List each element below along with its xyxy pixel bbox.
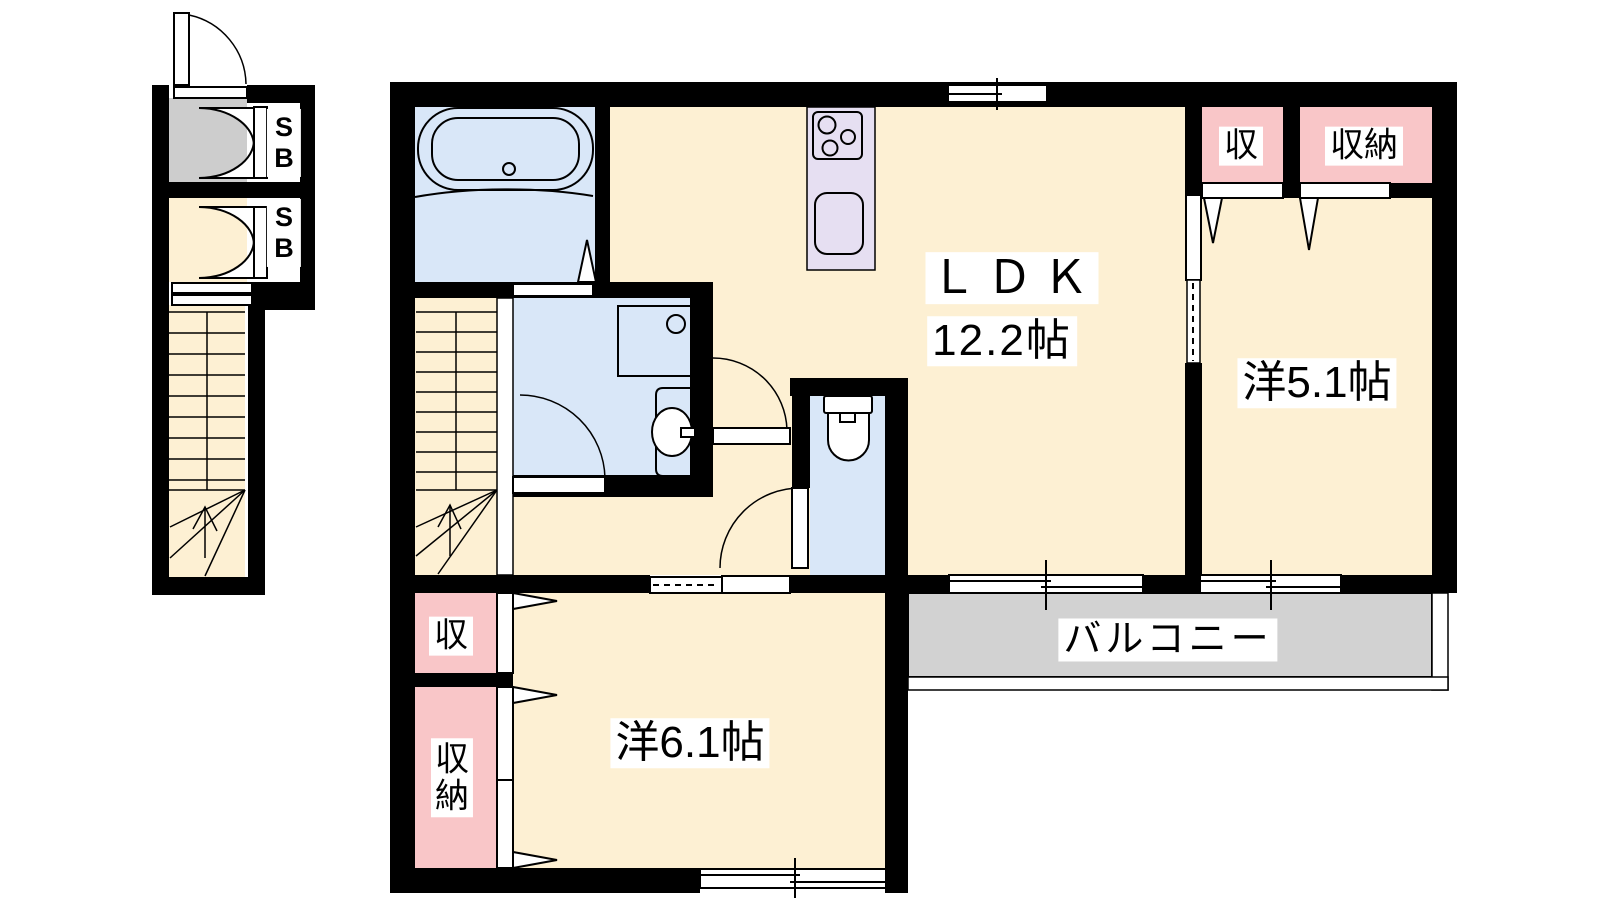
room-label-bedroom-south: 洋6.1帖 [610, 718, 769, 768]
kitchen-counter [807, 107, 875, 270]
closet-label-sw: 収 [429, 617, 473, 656]
closet-label-ne: 収納 [1325, 127, 1403, 166]
entrance-door-leaf [174, 13, 189, 85]
balcony-rail [908, 677, 1448, 690]
closet-door [1202, 183, 1283, 198]
hall-threshold [172, 295, 252, 305]
hall-threshold [172, 283, 252, 293]
toilet-icon [824, 396, 872, 460]
room-label-bedroom-east: 洋5.1帖 [1237, 358, 1396, 408]
entry-threshold [174, 87, 247, 98]
closet-label-ne: 収 [1219, 127, 1263, 166]
closet-door [1300, 183, 1390, 198]
shoebox-door-strip [254, 207, 267, 278]
balcony-label: バルコニー [1058, 618, 1277, 661]
closet-door [497, 687, 513, 780]
sliding-door-leaf [722, 576, 790, 593]
room-size-ldk: 12.2帖 [927, 316, 1077, 366]
shoebox-door-strip [254, 107, 267, 178]
closet-door [497, 780, 513, 868]
toilet-door-leaf [792, 488, 808, 568]
shoebox-label: SB [267, 199, 301, 267]
room-label-ldk: ＬＤＫ [926, 252, 1099, 304]
ldk-door-leaf [713, 428, 790, 444]
floorplan: SB SB 収 収納 ＬＤＫ 12.2帖 洋5.1帖 洋6.1帖 バルコニー 収… [0, 0, 1600, 900]
closet-door [497, 593, 513, 673]
closet-label-sw: 収納 [431, 738, 473, 817]
stair-partition [497, 298, 513, 575]
entrance-door-swing [189, 15, 246, 84]
balcony-rail [1432, 593, 1448, 690]
shoebox-label: SB [267, 109, 301, 177]
bedroom-east-sliding-leaf [1186, 195, 1201, 280]
bathroom-floor [415, 107, 595, 282]
washroom-door-leaf [513, 477, 605, 493]
bathroom-door-opening [513, 284, 593, 296]
